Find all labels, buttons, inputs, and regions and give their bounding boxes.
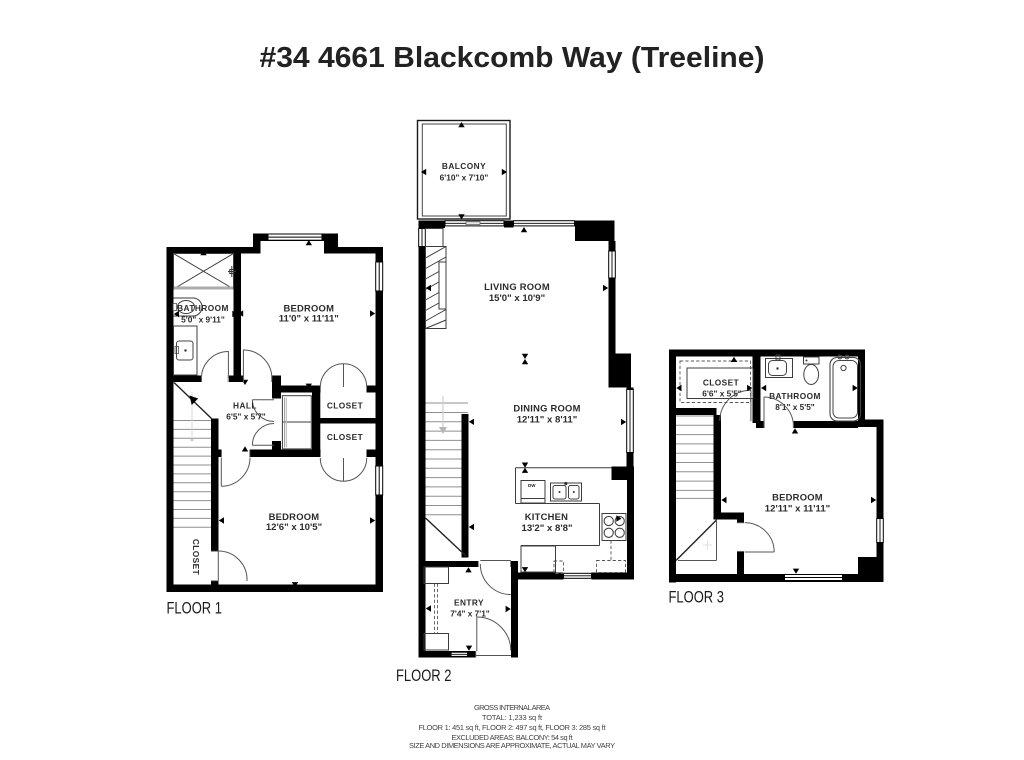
svg-text:TOTAL: 1,233 sq ft: TOTAL: 1,233 sq ft <box>482 713 542 722</box>
svg-text:HALL: HALL <box>233 401 257 411</box>
svg-text:BEDROOM: BEDROOM <box>283 303 334 314</box>
svg-text:8'1" x 5'5": 8'1" x 5'5" <box>775 402 815 412</box>
svg-text:GROSS INTERNAL AREA: GROSS INTERNAL AREA <box>474 703 550 712</box>
svg-text:FLOOR 1: FLOOR 1 <box>167 599 223 618</box>
svg-text:FLOOR 3: FLOOR 3 <box>669 588 725 607</box>
svg-text:ENTRY: ENTRY <box>454 598 484 608</box>
svg-text:DW: DW <box>528 483 536 488</box>
svg-text:6'5" x 5'7": 6'5" x 5'7" <box>226 412 266 422</box>
svg-text:FLOOR 2: FLOOR 2 <box>396 666 452 685</box>
svg-text:15'0" x 10'9": 15'0" x 10'9" <box>489 293 545 304</box>
svg-text:7'4" x 7'1": 7'4" x 7'1" <box>450 609 490 619</box>
svg-text:CLOSET: CLOSET <box>191 539 201 575</box>
svg-text:12'11" x 11'11": 12'11" x 11'11" <box>765 504 830 515</box>
svg-text:5'0" x 9'11": 5'0" x 9'11" <box>181 315 225 325</box>
svg-text:BATHROOM: BATHROOM <box>177 303 229 313</box>
svg-text:BEDROOM: BEDROOM <box>772 492 823 503</box>
svg-text:BEDROOM: BEDROOM <box>269 511 320 522</box>
svg-text:KITCHEN: KITCHEN <box>525 511 568 522</box>
svg-text:12'6" x 10'5": 12'6" x 10'5" <box>266 522 322 533</box>
svg-text:FLOOR 1: 451 sq ft, FLOOR 2: 4: FLOOR 1: 451 sq ft, FLOOR 2: 497 sq ft, … <box>419 723 606 732</box>
svg-text:LIVING ROOM: LIVING ROOM <box>484 281 550 292</box>
svg-text:CLOSET: CLOSET <box>327 401 363 411</box>
svg-text:CLOSET: CLOSET <box>327 432 363 442</box>
svg-text:BALCONY: BALCONY <box>442 161 486 171</box>
svg-text:#34 4661 Blackcomb Way (Treeli: #34 4661 Blackcomb Way (Treeline) <box>260 42 765 74</box>
svg-text:SIZE AND DIMENSIONS ARE APPROX: SIZE AND DIMENSIONS ARE APPROXIMATE, ACT… <box>409 741 615 750</box>
svg-text:12'11" x 8'11": 12'11" x 8'11" <box>517 415 578 426</box>
svg-text:DINING ROOM: DINING ROOM <box>513 403 580 414</box>
svg-text:11'0" x 11'11": 11'0" x 11'11" <box>279 314 339 325</box>
svg-text:13'2" x 8'8": 13'2" x 8'8" <box>521 523 572 534</box>
svg-text:6'10" x 7'10": 6'10" x 7'10" <box>440 173 489 183</box>
svg-text:CLOSET: CLOSET <box>703 378 739 388</box>
